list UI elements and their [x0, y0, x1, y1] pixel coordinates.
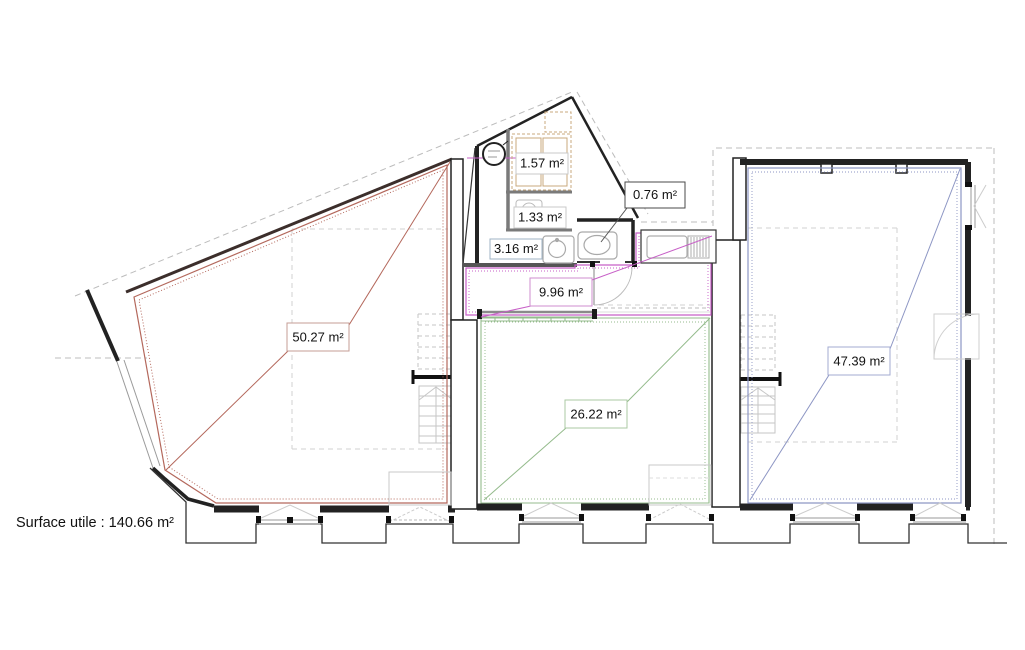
wall-divider-right-upper — [733, 158, 746, 240]
room-label-9-96-text: 9.96 m² — [539, 285, 584, 300]
room-label-26-22-text: 26.22 m² — [570, 407, 622, 422]
room-label-0-76-text: 0.76 m² — [633, 187, 678, 202]
wall-cluster-top-diagonal — [477, 97, 572, 146]
room-label-1-33-text: 1.33 m² — [518, 210, 563, 225]
window-middle-room-bottom — [519, 503, 584, 522]
wall-divider-left-lower — [451, 320, 477, 509]
room-label-50-27: 50.27 m² — [287, 323, 349, 351]
surface-utile-text: Surface utile : 140.66 m² — [16, 515, 174, 531]
window-right-wall — [965, 182, 986, 230]
door-right-wall — [934, 314, 979, 359]
room-label-3-16-text: 3.16 m² — [494, 241, 539, 256]
stair-ibeam-icon — [735, 372, 780, 386]
room-label-47-39-text: 47.39 m² — [833, 354, 885, 369]
water-heater-icon — [483, 141, 508, 165]
room-label-47-39: 47.39 m² — [828, 347, 890, 375]
wall-divider-right-lower — [712, 240, 740, 507]
floor-plan-svg: 50.27 m² 1.57 m² 1.33 m² 3.16 m² 0.76 m²… — [0, 0, 1025, 650]
wall-cluster-inner-slant — [463, 148, 475, 264]
room-label-0-76: 0.76 m² — [625, 182, 685, 208]
toilet-icon — [578, 232, 617, 259]
sink-icon — [543, 236, 574, 263]
window-left-room-bottom — [256, 505, 323, 524]
room-label-1-57: 1.57 m² — [516, 153, 568, 174]
floor-plan-canvas: 50.27 m² 1.57 m² 1.33 m² 3.16 m² 0.76 m²… — [0, 0, 1025, 650]
window-right-room-bottom-1 — [790, 503, 860, 522]
room-label-50-27-text: 50.27 m² — [292, 330, 344, 345]
room-label-1-33: 1.33 m² — [514, 207, 566, 228]
window-left-slanted — [117, 360, 160, 468]
window-right-room-bottom-2 — [910, 503, 966, 522]
room-label-3-16: 3.16 m² — [490, 239, 542, 259]
room-label-9-96: 9.96 m² — [530, 278, 592, 306]
room-label-26-22: 26.22 m² — [565, 400, 627, 428]
stair-right — [735, 315, 780, 433]
door-middle-room-bottom — [646, 465, 714, 521]
room-label-1-57-text: 1.57 m² — [520, 156, 565, 171]
wall-left-room-top — [126, 159, 452, 292]
wall-left-upper — [87, 290, 118, 361]
wall-divider-left-upper — [451, 159, 463, 320]
door-left-room-bottom — [386, 472, 454, 523]
